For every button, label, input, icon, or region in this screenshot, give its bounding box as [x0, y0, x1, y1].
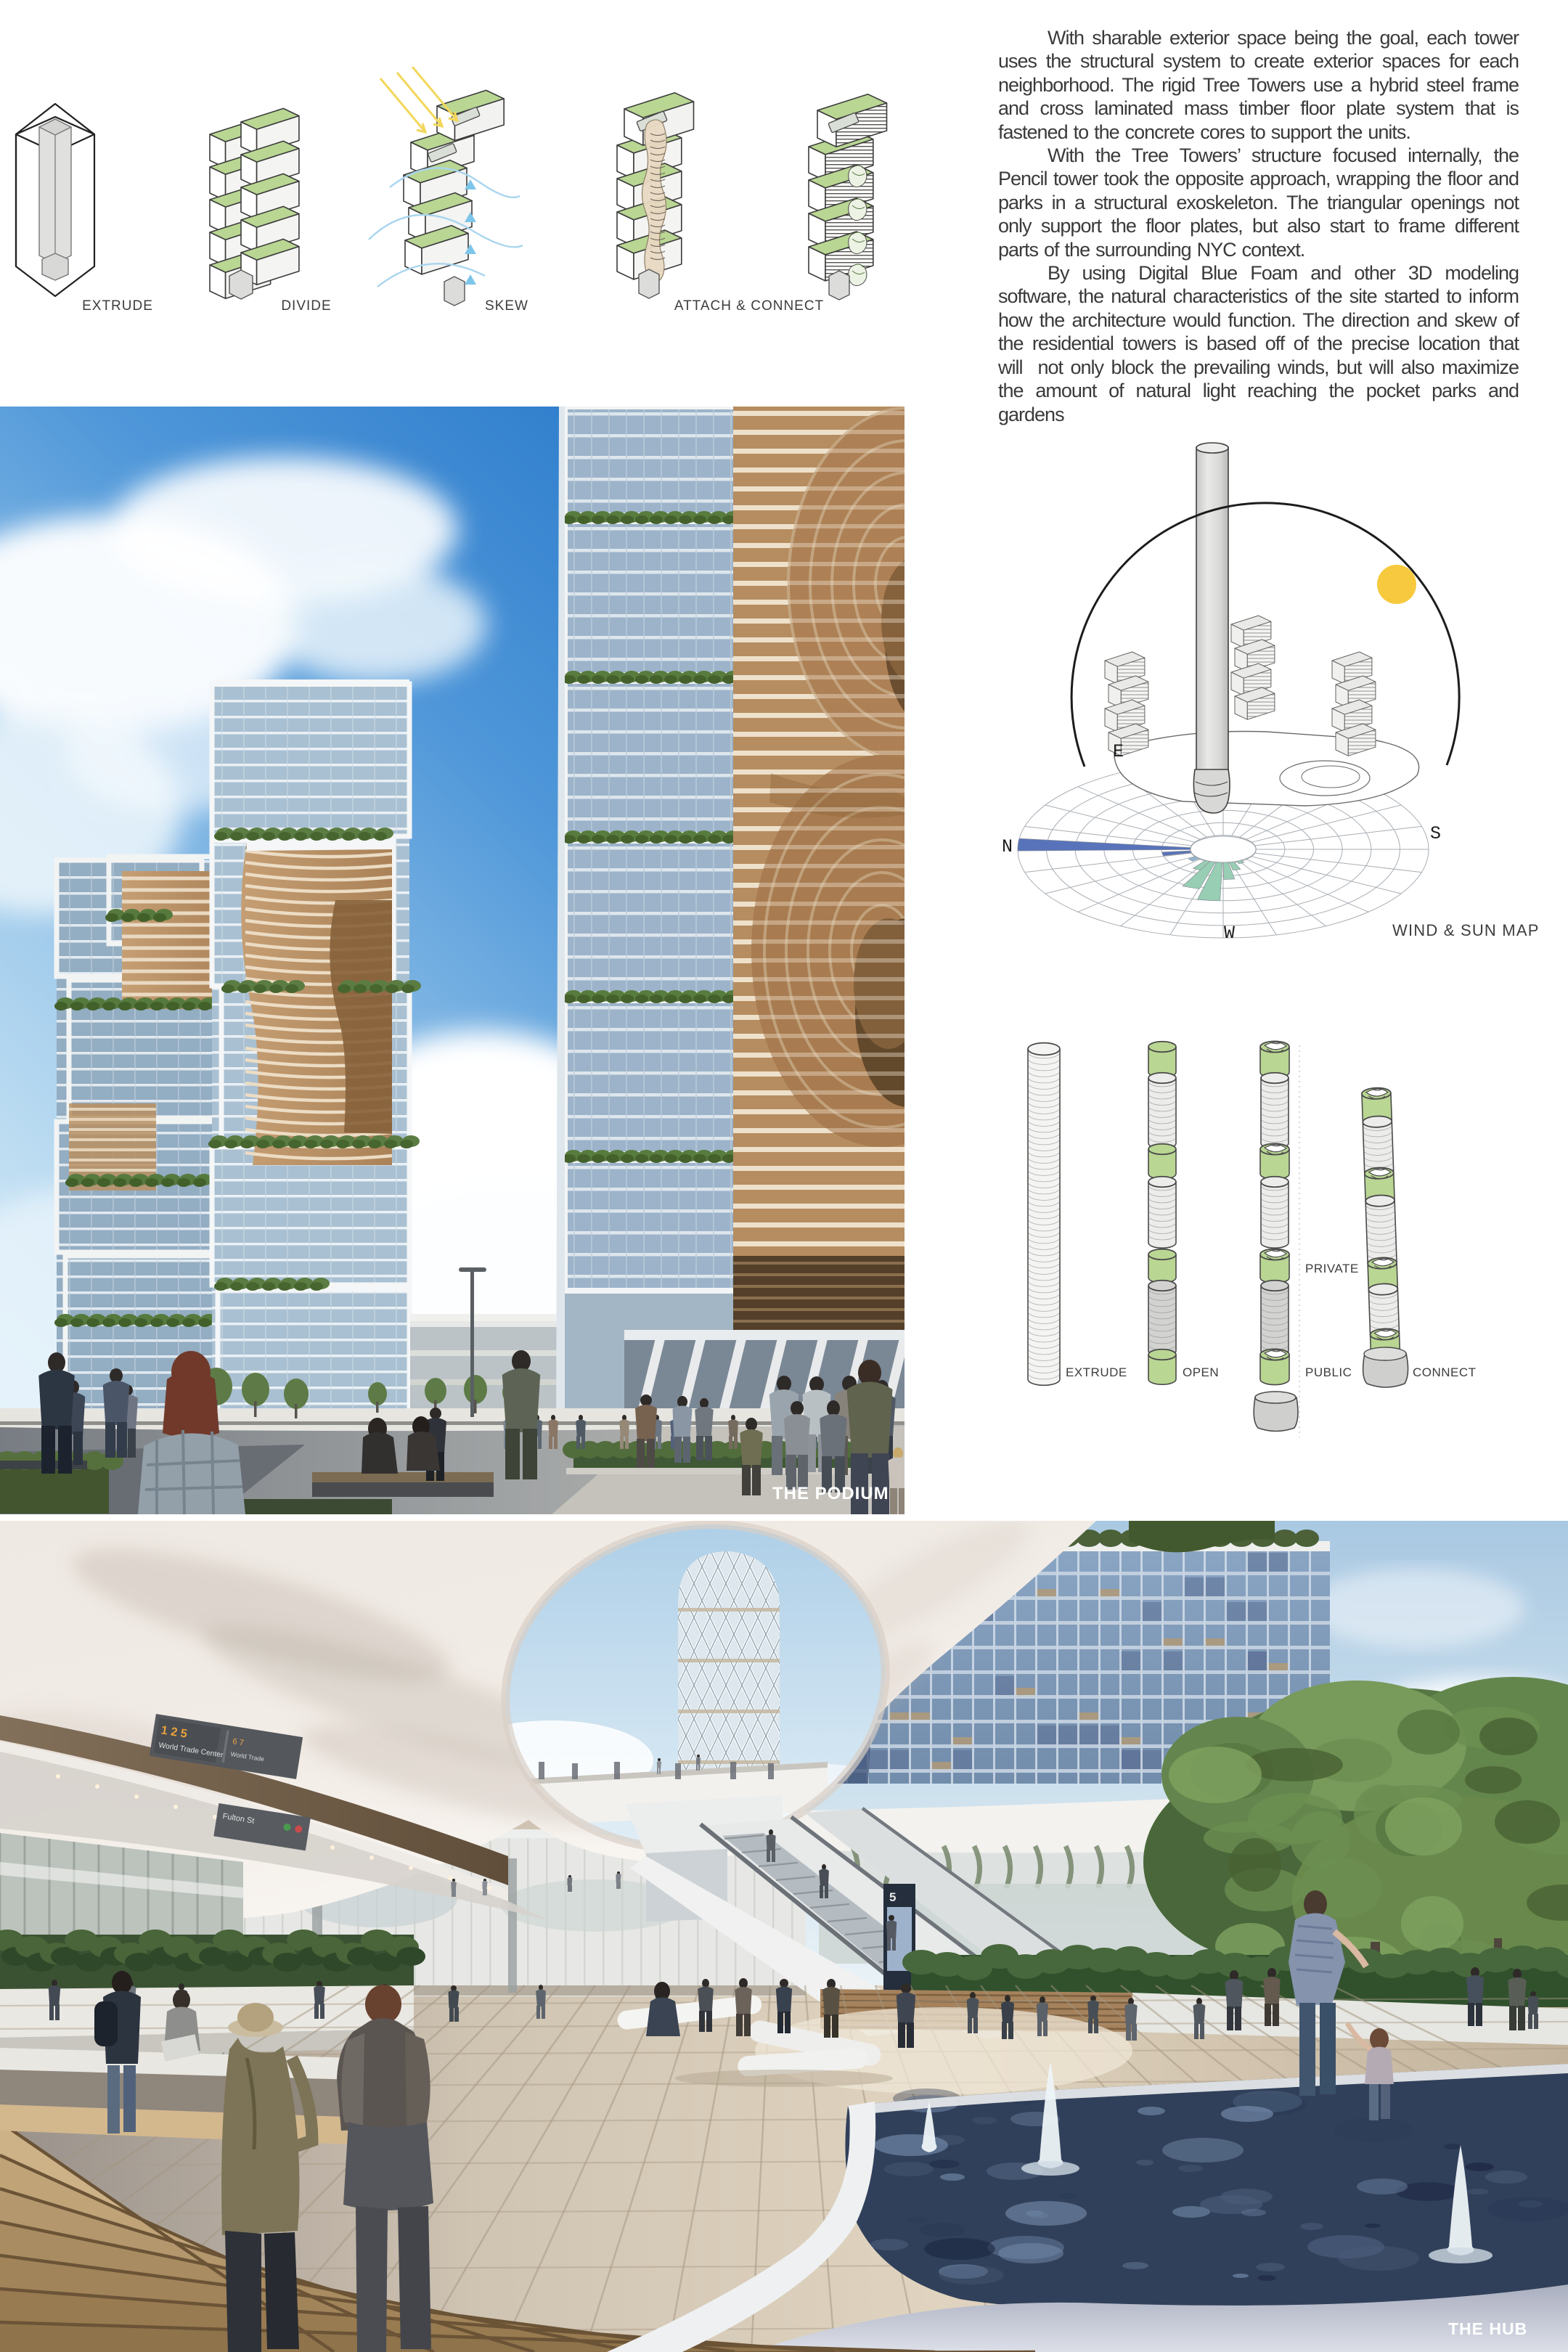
- svg-text:WIND & SUN MAP: WIND & SUN MAP: [1392, 921, 1540, 939]
- svg-text:THE HUB: THE HUB: [1448, 2319, 1527, 2338]
- svg-text:CONNECT: CONNECT: [1413, 1365, 1477, 1379]
- svg-text:5: 5: [889, 1890, 896, 1904]
- svg-text:EXTRUDE: EXTRUDE: [1066, 1365, 1127, 1379]
- svg-text:SKEW: SKEW: [485, 298, 528, 314]
- svg-text:ATTACH & CONNECT: ATTACH & CONNECT: [674, 298, 824, 314]
- svg-text:6 7: 6 7: [232, 1737, 244, 1747]
- svg-text:PUBLIC: PUBLIC: [1305, 1365, 1352, 1379]
- svg-text:N: N: [1002, 836, 1013, 857]
- svg-text:E: E: [1113, 741, 1124, 762]
- svg-text:PRIVATE: PRIVATE: [1305, 1262, 1359, 1275]
- svg-text:S: S: [1430, 823, 1441, 844]
- svg-text:DIVIDE: DIVIDE: [281, 298, 331, 314]
- svg-text:W: W: [1224, 923, 1235, 944]
- svg-text:THE PODIUM: THE PODIUM: [772, 1484, 889, 1503]
- svg-text:OPEN: OPEN: [1183, 1365, 1219, 1379]
- svg-text:EXTRUDE: EXTRUDE: [82, 298, 153, 314]
